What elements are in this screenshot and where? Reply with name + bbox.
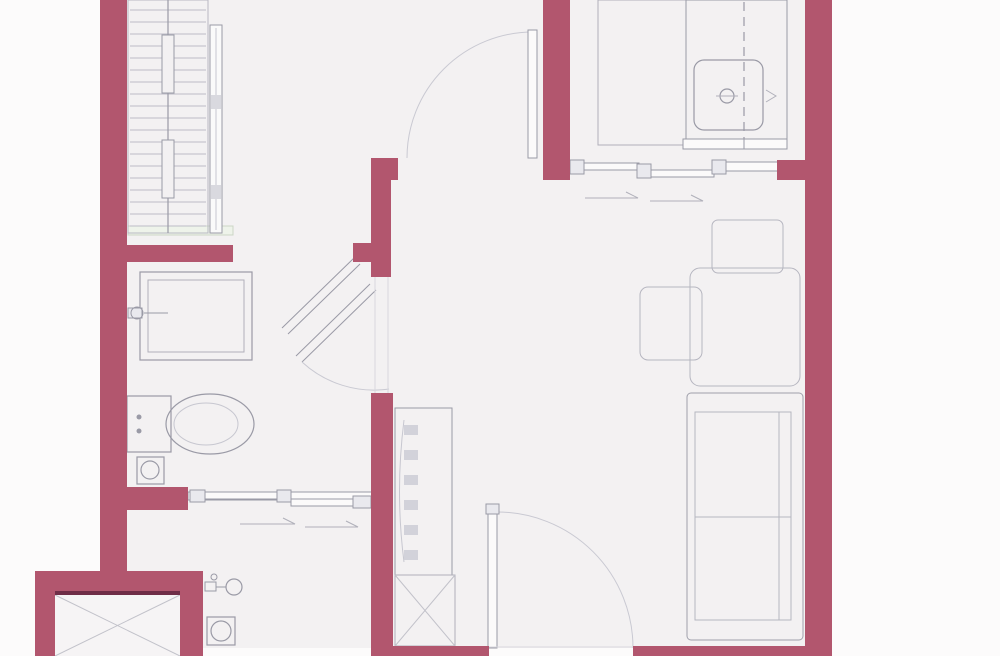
wall-central-upper (371, 158, 391, 277)
entry-door-leaf (488, 508, 497, 648)
bath-sliding-door-block-left (190, 490, 205, 502)
shoe-slot-3 (404, 475, 418, 485)
top-sliding-door-panel-2 (651, 170, 714, 177)
top-sliding-door-block-mid (637, 164, 651, 178)
shoe-slot-2 (404, 450, 418, 460)
wall-bottom-right-of-entry (633, 646, 832, 656)
elevator-floor (55, 591, 180, 656)
wall-bath-sliding-pier-left (100, 487, 188, 510)
top-sliding-door-panel-3 (726, 162, 778, 171)
hall-door-leaf (528, 30, 537, 158)
bath-sliding-door-block-right (353, 496, 371, 508)
bath-sliding-door-panel-2 (291, 499, 353, 506)
bath-sliding-door-panel-1 (205, 492, 277, 499)
toilet-button-1 (137, 415, 142, 420)
toilet-button-2 (137, 429, 142, 434)
closet-rod-block-upper (162, 35, 174, 93)
floor-plan-canvas: Apartment floor plan (0, 0, 1000, 656)
wall-closet-south (100, 245, 233, 262)
closet-glass-handle-upper (211, 95, 221, 109)
sink-faucet-body (128, 308, 142, 318)
wall-showerroom-left (543, 0, 570, 180)
closet-rod-block-lower (162, 140, 174, 198)
wall-right (805, 0, 832, 656)
floor-plan-drawing (0, 0, 1000, 656)
shoe-slot-4 (404, 500, 418, 510)
wall-sliding-pier-right (777, 160, 805, 180)
wall-bottom-left-of-entry (373, 646, 489, 656)
vanity-bottom-rim (683, 139, 787, 149)
closet-glass-handle-lower (211, 185, 221, 199)
wall-elevator-left (35, 571, 55, 656)
bath-sliding-door-block-mid (277, 490, 291, 502)
entry-door-edge-block (486, 504, 499, 514)
wall-elevator-top (35, 571, 203, 591)
elevator-door-line (55, 591, 180, 595)
top-sliding-door-panel-1 (584, 163, 639, 170)
top-sliding-door-block-right (712, 160, 726, 174)
wall-bath-door-stub (353, 243, 371, 262)
shoe-slot-1 (404, 425, 418, 435)
wall-elevator-right (180, 591, 203, 656)
top-sliding-door-block-left (570, 160, 584, 174)
shoe-slot-6 (404, 550, 418, 560)
shoe-slot-5 (404, 525, 418, 535)
wall-central-lower (371, 393, 393, 656)
